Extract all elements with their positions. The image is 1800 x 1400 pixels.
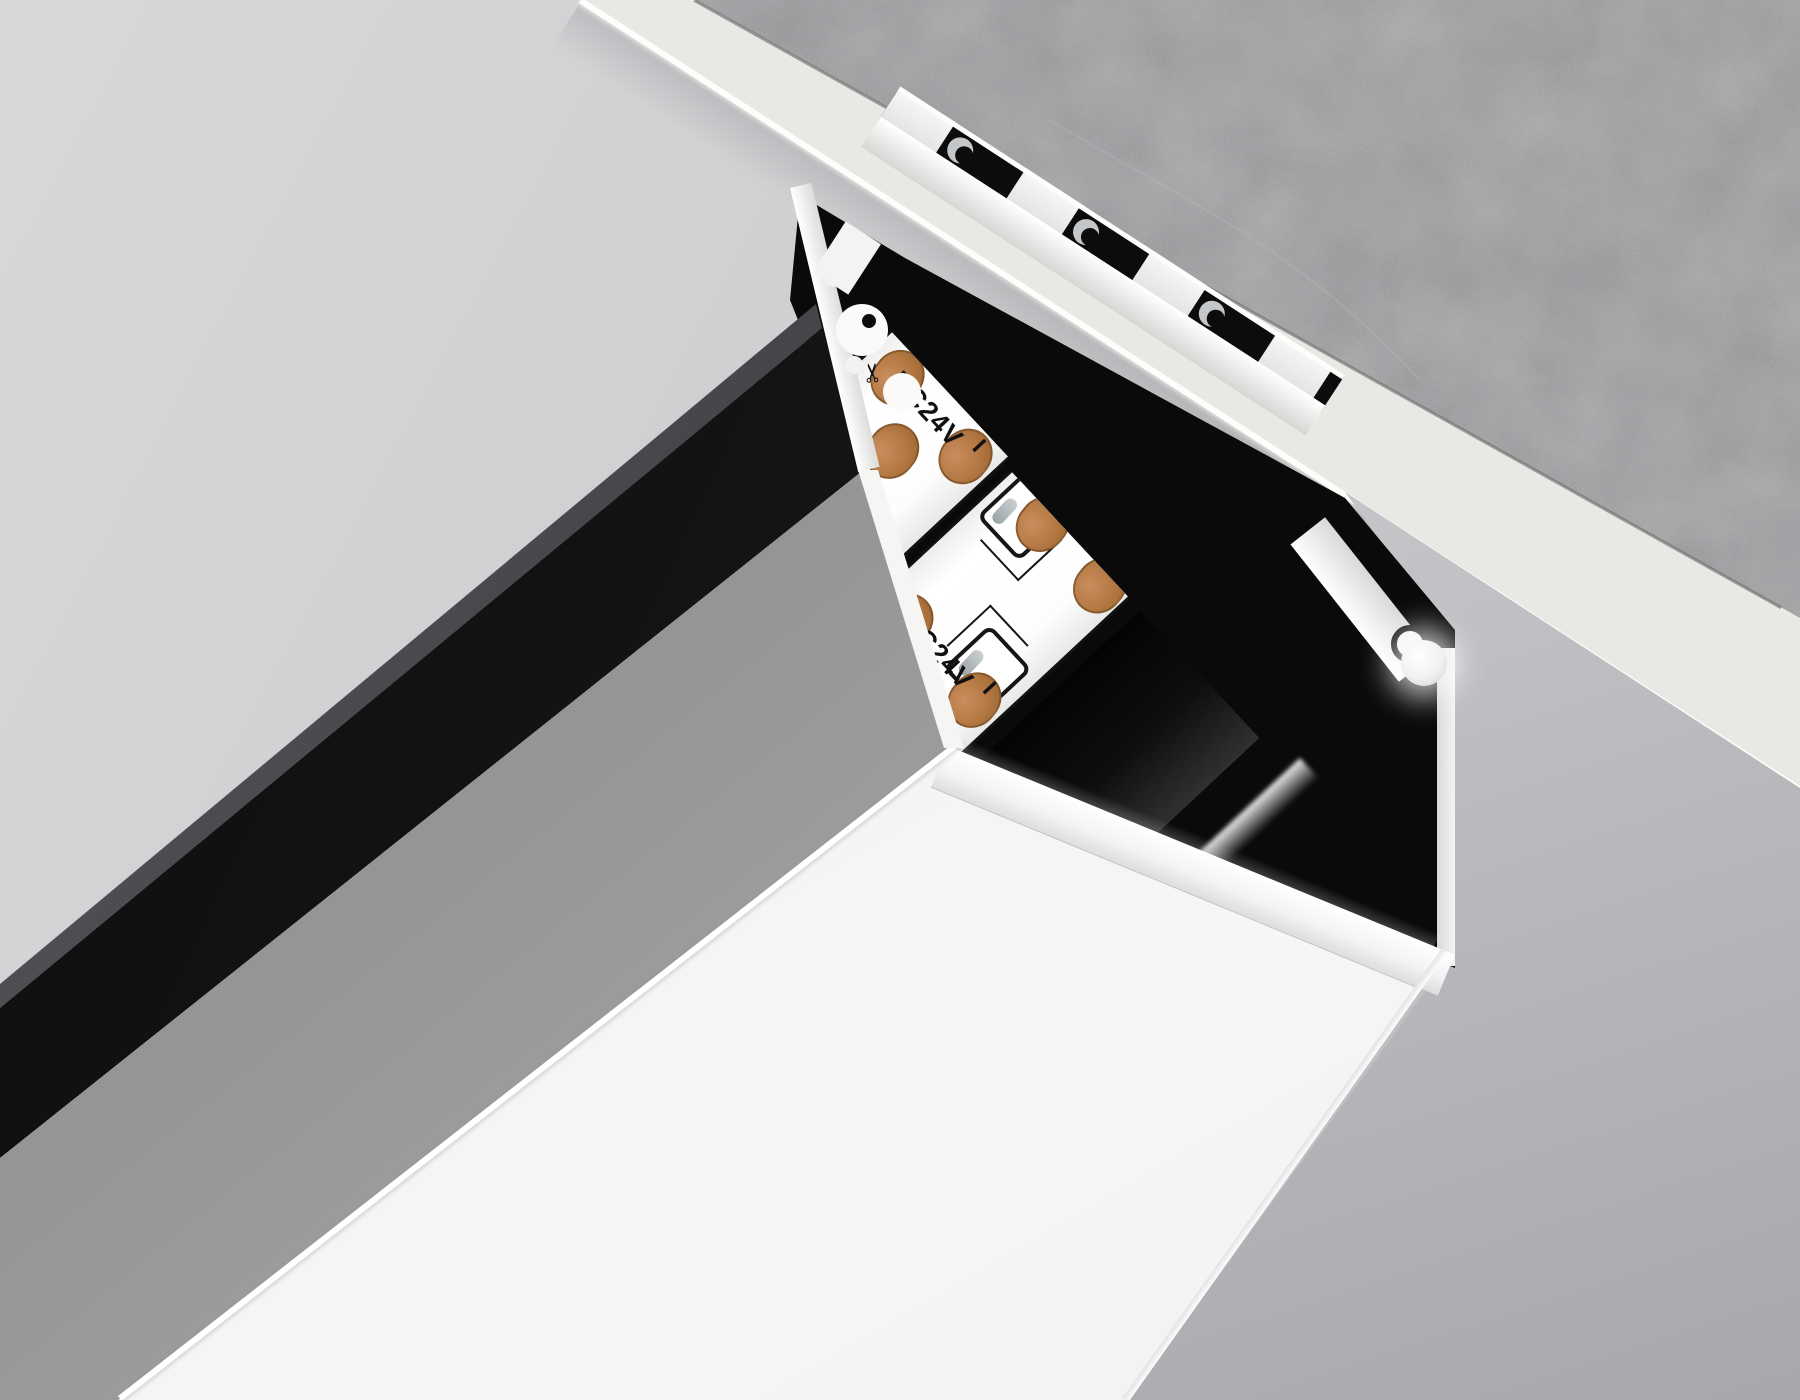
screw-channel-curl [883, 373, 921, 411]
solder-pad [1062, 547, 1130, 624]
screw-channel-curl-hole [862, 314, 876, 328]
product-render-stage: 151151+✂DC24V−AMBRELLA LIGHT 151151+✂DC2… [0, 0, 1800, 1400]
diffuser-right-cut-edge [1437, 648, 1455, 966]
screw-boss [1401, 640, 1447, 686]
screw-channel-curl [836, 304, 888, 356]
